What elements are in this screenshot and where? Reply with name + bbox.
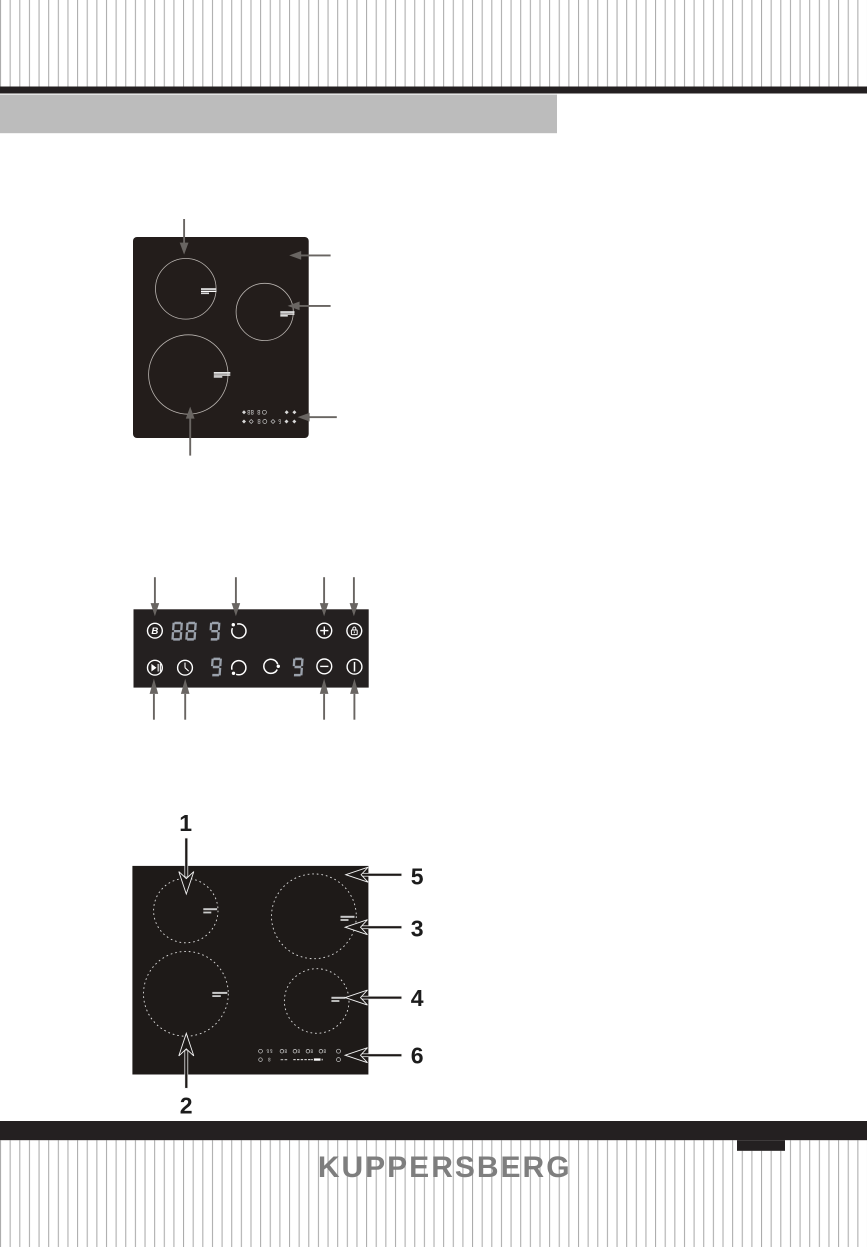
svg-text:3: 3 <box>411 915 424 941</box>
svg-text:2: 2 <box>180 1092 193 1118</box>
svg-text:4: 4 <box>411 985 424 1011</box>
svg-text:1: 1 <box>179 810 192 836</box>
svg-text:KUPPERSBERG: KUPPERSBERG <box>318 1151 572 1184</box>
svg-text:5: 5 <box>411 863 424 889</box>
svg-text:6: 6 <box>411 1043 424 1069</box>
svg-text:B: B <box>151 626 158 637</box>
